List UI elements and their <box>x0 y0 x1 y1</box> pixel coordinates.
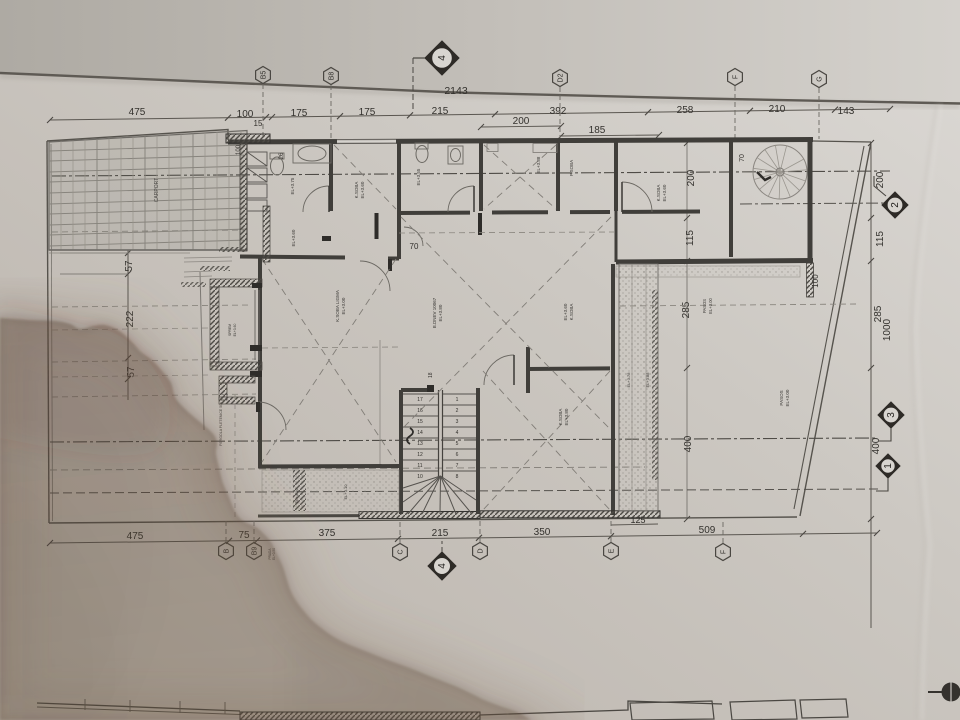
svg-text:70: 70 <box>410 242 419 251</box>
svg-text:K.SOBA: K.SOBA <box>656 185 661 202</box>
svg-text:70: 70 <box>739 154 746 162</box>
svg-text:3: 3 <box>886 412 897 418</box>
svg-text:EL+3.80: EL+3.80 <box>438 304 443 321</box>
svg-text:SPREM: SPREM <box>228 324 232 336</box>
svg-text:EL+3.80: EL+3.80 <box>564 408 569 425</box>
svg-text:E: E <box>609 548 616 553</box>
svg-text:100: 100 <box>236 144 242 155</box>
svg-text:EL+3.10: EL+3.10 <box>343 484 348 500</box>
svg-text:15: 15 <box>417 419 423 425</box>
svg-text:P.SOBA: P.SOBA <box>569 160 574 176</box>
svg-text:EL+3.00: EL+3.00 <box>341 297 346 314</box>
svg-text:EL+3.55: EL+3.55 <box>416 168 421 185</box>
svg-text:14: 14 <box>417 430 423 436</box>
svg-text:PASOS: PASOS <box>779 390 784 405</box>
svg-text:3: 3 <box>456 419 459 425</box>
svg-text:100: 100 <box>811 274 820 288</box>
svg-text:B.DNEV 10067: B.DNEV 10067 <box>432 297 437 328</box>
svg-text:EL+3.00: EL+3.00 <box>785 389 790 406</box>
svg-text:210: 210 <box>769 104 786 115</box>
svg-text:115: 115 <box>875 231 886 247</box>
svg-text:EL+3.60: EL+3.60 <box>563 303 568 320</box>
svg-text:175: 175 <box>359 107 376 118</box>
svg-text:350: 350 <box>534 527 551 538</box>
svg-text:K.SOBA: K.SOBA <box>354 182 359 199</box>
svg-text:F: F <box>733 75 740 79</box>
svg-text:475: 475 <box>129 107 146 118</box>
svg-text:4: 4 <box>437 563 448 569</box>
svg-text:B5: B5 <box>261 71 268 80</box>
svg-text:4: 4 <box>437 55 448 61</box>
svg-text:F: F <box>721 550 728 554</box>
svg-text:G: G <box>817 76 824 81</box>
svg-text:C: C <box>398 549 405 554</box>
svg-text:EL+3.88: EL+3.88 <box>536 156 541 173</box>
svg-text:185: 185 <box>589 125 606 136</box>
svg-text:18: 18 <box>428 372 434 378</box>
svg-text:7: 7 <box>456 463 459 469</box>
svg-text:EL+3.75: EL+3.75 <box>290 177 295 194</box>
svg-text:K.SOBA: K.SOBA <box>569 304 574 321</box>
svg-text:143: 143 <box>838 106 855 117</box>
svg-text:PASOS: PASOS <box>702 299 707 313</box>
svg-text:215: 215 <box>432 528 449 539</box>
svg-text:8: 8 <box>456 474 459 480</box>
svg-text:EL+3.60: EL+3.60 <box>360 181 365 198</box>
svg-text:175: 175 <box>291 108 308 119</box>
svg-text:EL+3.60: EL+3.60 <box>291 229 296 246</box>
svg-text:392: 392 <box>550 106 567 117</box>
svg-text:EL+3.88: EL+3.88 <box>645 372 650 388</box>
svg-text:1000: 1000 <box>882 318 893 341</box>
svg-text:D2: D2 <box>558 73 565 82</box>
svg-text:1: 1 <box>456 397 459 403</box>
svg-text:200: 200 <box>875 171 886 188</box>
svg-text:400: 400 <box>683 435 694 452</box>
svg-text:1: 1 <box>883 463 894 469</box>
svg-text:6: 6 <box>456 452 459 458</box>
svg-text:285: 285 <box>681 301 692 318</box>
svg-text:115: 115 <box>685 230 696 246</box>
svg-text:57: 57 <box>124 260 135 272</box>
svg-text:K.SOBA: K.SOBA <box>558 409 563 426</box>
svg-text:509: 509 <box>699 525 716 536</box>
svg-text:2: 2 <box>456 408 459 414</box>
svg-text:5: 5 <box>456 441 459 447</box>
svg-text:EL+3.60: EL+3.60 <box>233 324 237 337</box>
svg-text:258: 258 <box>677 105 694 116</box>
svg-text:15: 15 <box>254 119 263 128</box>
svg-text:4: 4 <box>456 430 459 436</box>
svg-text:375: 375 <box>319 528 336 539</box>
svg-text:2: 2 <box>890 202 901 208</box>
svg-text:EL+3.10: EL+3.10 <box>294 488 299 504</box>
svg-text:10: 10 <box>417 474 423 480</box>
svg-text:13: 13 <box>417 441 423 447</box>
svg-text:2143: 2143 <box>444 85 468 97</box>
svg-text:12: 12 <box>417 452 423 458</box>
svg-text:215: 215 <box>432 106 449 117</box>
svg-text:200: 200 <box>513 116 530 127</box>
svg-text:17: 17 <box>417 397 423 403</box>
svg-text:100: 100 <box>237 109 254 120</box>
svg-text:400: 400 <box>871 437 882 454</box>
svg-text:EL+3.78: EL+3.78 <box>626 372 631 388</box>
svg-text:B8: B8 <box>329 72 336 81</box>
svg-text:EL+3.00: EL+3.00 <box>708 297 713 313</box>
svg-text:K.SOBA LIGMA: K.SOBA LIGMA <box>335 290 340 322</box>
svg-text:EL+3.60: EL+3.60 <box>662 184 667 201</box>
svg-text:26: 26 <box>279 152 285 159</box>
svg-text:D: D <box>478 548 485 553</box>
svg-text:11: 11 <box>417 463 422 469</box>
